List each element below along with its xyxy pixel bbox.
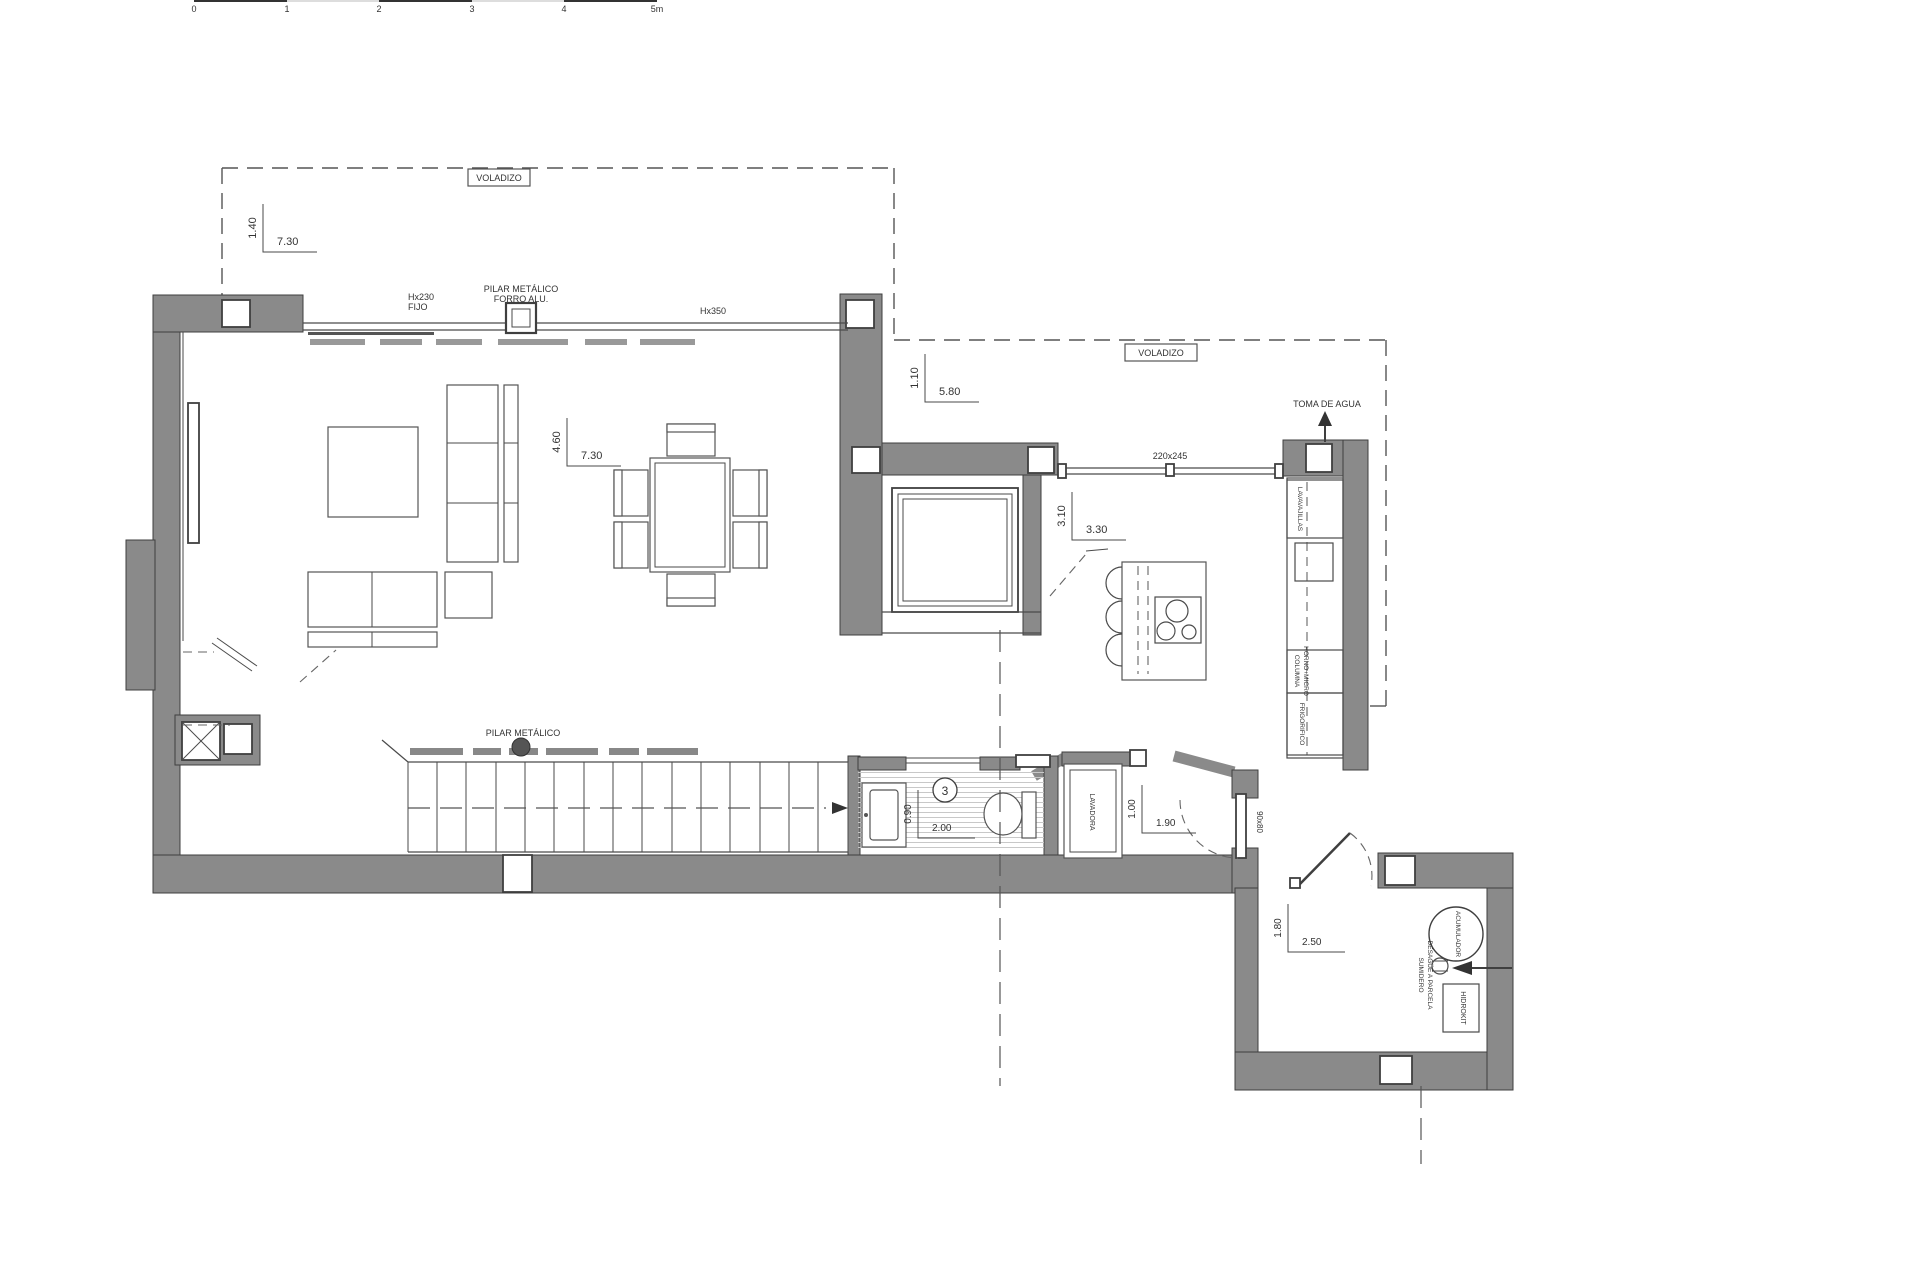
faucet-dot xyxy=(864,813,868,817)
bar-stool xyxy=(1106,601,1122,633)
kitchen-right-wall xyxy=(1343,440,1368,770)
dimension-value: 1.80 xyxy=(1273,918,1284,938)
column xyxy=(1028,447,1054,473)
kitchen-counter: LAVAVAJILLAS COLUMNA HORNO+MICRO FRIGORI… xyxy=(1287,478,1343,758)
dimension-value: 5.80 xyxy=(939,386,960,398)
lavadora-label: LAVADORA xyxy=(1088,793,1095,830)
scale-tick-1: 1 xyxy=(284,4,289,14)
dimension-4-60-7-30: 4.60 7.30 xyxy=(551,418,621,466)
columns xyxy=(182,300,1415,1084)
dimension-value: 7.30 xyxy=(581,450,602,462)
metal-pillar-dot xyxy=(512,738,530,756)
upper-floor-dash xyxy=(1050,554,1086,596)
dimension-1-10-5-80: 1.10 5.80 xyxy=(909,354,979,402)
dishwasher xyxy=(1287,480,1343,538)
scale-tick-2: 2 xyxy=(376,4,381,14)
dining-table xyxy=(650,458,730,572)
staircase: PILAR METÁLICO xyxy=(382,728,848,852)
dimension-value: 1.10 xyxy=(909,367,921,388)
drain-arrow-head xyxy=(1452,961,1472,975)
entry-door-leaf xyxy=(1236,794,1246,858)
stair-rail-seg xyxy=(546,748,598,755)
island-counter xyxy=(1122,562,1206,680)
dining-chair-back xyxy=(667,598,715,606)
wall-niche-window xyxy=(188,403,199,543)
toilet-cistern xyxy=(1022,792,1036,838)
scale-bar-segment xyxy=(472,0,564,2)
door-hinge xyxy=(1290,878,1300,888)
ottoman xyxy=(445,572,492,618)
sofa-seats-vertical xyxy=(447,385,498,562)
sumidero-label-1: SUMIDERO xyxy=(1417,957,1424,992)
dining-chair-back xyxy=(614,470,622,516)
dining-set xyxy=(614,424,767,606)
column xyxy=(846,300,874,328)
scale-tick-4: 4 xyxy=(561,4,566,14)
scale-tick-5: 5m xyxy=(651,4,664,14)
bottom-wall-window xyxy=(503,855,532,892)
scale-bar: 0 1 2 3 4 5m xyxy=(191,0,663,14)
shaft-right-wall xyxy=(1023,475,1041,635)
terrace-edge-seg xyxy=(585,339,627,345)
stair-rail-seg xyxy=(647,748,698,755)
dimension-value: 3.30 xyxy=(1086,524,1107,536)
metal-pillar xyxy=(506,303,536,333)
stair-rail-seg xyxy=(473,748,501,755)
column xyxy=(852,447,880,473)
stair-arrow xyxy=(832,802,848,814)
scale-bar-segment xyxy=(287,0,379,2)
utility-bottom-wall xyxy=(1235,1052,1513,1090)
column xyxy=(222,300,250,327)
hx350-label: Hx350 xyxy=(700,306,726,316)
door-size-label: 90x80 xyxy=(1255,811,1264,833)
counter-run xyxy=(1287,478,1343,758)
scale-tick-3: 3 xyxy=(469,4,474,14)
left-wall-step xyxy=(126,540,155,690)
dimension-1-40-7-30: 1.40 7.30 xyxy=(247,204,317,252)
entry-door-swing xyxy=(1180,800,1238,858)
dimension-value: 3.10 xyxy=(1056,505,1068,526)
dimension-value: 4.60 xyxy=(551,431,563,452)
dining-chair-back xyxy=(759,470,767,516)
utility-door-swing xyxy=(1350,833,1372,886)
fridge xyxy=(1287,693,1343,755)
bath-top-wall-a xyxy=(858,757,906,770)
terrace-edge-seg xyxy=(310,339,365,345)
window-post xyxy=(1058,464,1066,478)
floor-plan-canvas: 0 1 2 3 4 5m VOLADIZO VOLADIZO xyxy=(0,0,1920,1280)
skylight-outer xyxy=(892,488,1018,612)
oven-column-label-1: COLUMNA xyxy=(1293,655,1300,688)
sliding-rail xyxy=(308,332,434,335)
bath-sliding-door xyxy=(1016,755,1050,767)
bath-right-wall xyxy=(1044,756,1058,855)
corner-glazing-diagonal xyxy=(212,643,252,671)
terrace-edge-seg xyxy=(640,339,695,345)
dining-chair-back xyxy=(667,424,715,432)
central-shaft xyxy=(882,488,1041,633)
dimension-value: 1.90 xyxy=(1156,818,1176,829)
column xyxy=(1385,856,1415,885)
fridge-label: FRIGORIFICO xyxy=(1298,703,1305,746)
column xyxy=(1130,750,1146,766)
dimension-3-10-3-30: 3.10 3.30 xyxy=(1056,492,1126,540)
scale-tick-0: 0 xyxy=(191,4,196,14)
hx230-label: Hx230 xyxy=(408,292,434,302)
upper-floor-edge xyxy=(1086,549,1108,551)
utility-door-leaf xyxy=(1298,833,1350,886)
sumidero-label-2: DESAGÜE A PARCELA xyxy=(1426,941,1434,1011)
scale-bar-segment xyxy=(194,0,287,2)
dimension-value: 2.00 xyxy=(932,823,952,834)
dimension-value: 7.30 xyxy=(277,236,298,248)
floor-plan-drawing: 0 1 2 3 4 5m VOLADIZO VOLADIZO xyxy=(0,0,1920,1280)
stair-rail-seg xyxy=(410,748,463,755)
water-arrow-head xyxy=(1318,411,1332,426)
hidrokit-label: HIDROKIT xyxy=(1459,991,1466,1025)
voladizo-label-1: VOLADIZO xyxy=(476,173,522,183)
toma-de-agua-label: TOMA DE AGUA xyxy=(1293,399,1361,409)
stair-rail-seg xyxy=(609,748,639,755)
sofa-backrest-vertical xyxy=(504,385,518,562)
oven-column-label-2: HORNO+MICRO xyxy=(1302,646,1309,696)
dimension-1-80-2-50: 1.80 2.50 xyxy=(1273,904,1345,952)
left-wall xyxy=(153,295,180,855)
voladizo-outline-upper: VOLADIZO xyxy=(222,168,894,340)
voladizo-label-2: VOLADIZO xyxy=(1138,348,1184,358)
acumulador-label: ACUMULADOR xyxy=(1454,911,1461,958)
terrace-edge-seg xyxy=(436,339,482,345)
window-mullion xyxy=(1166,464,1174,476)
column xyxy=(224,724,252,754)
kitchen-island xyxy=(1050,549,1206,680)
bottom-wall xyxy=(153,855,1258,893)
pilar-metalico-label-1: PILAR METÁLICO xyxy=(484,284,559,294)
dining-chair-back xyxy=(759,522,767,568)
fijo-label: FIJO xyxy=(408,302,428,312)
corner-glazing-diagonal xyxy=(217,638,257,666)
window-size-label: 220x245 xyxy=(1153,451,1188,461)
dimension-1-00-1-90: 1.00 1.90 xyxy=(1127,785,1196,833)
utility-window xyxy=(1380,1056,1412,1084)
dishwasher-label: LAVAVAJILLAS xyxy=(1296,487,1303,532)
dimension-value: 0.90 xyxy=(903,804,914,824)
column xyxy=(1306,444,1332,472)
dimension-value: 1.40 xyxy=(247,217,259,238)
stair-lead-line xyxy=(382,740,408,762)
bar-stool xyxy=(1106,567,1122,599)
utility-right-wall xyxy=(1487,853,1513,1090)
living-room-sofa xyxy=(308,385,518,647)
scale-bar-segment xyxy=(379,0,472,2)
bar-stool xyxy=(1106,634,1122,666)
toilet-bowl xyxy=(984,793,1022,835)
upper-floor-dash xyxy=(300,650,336,682)
dining-chair-back xyxy=(614,522,622,568)
dimension-value: 1.00 xyxy=(1127,799,1138,819)
window-post xyxy=(1275,464,1283,478)
kitchen-sink xyxy=(1295,543,1333,581)
dimension-value: 2.50 xyxy=(1302,937,1322,948)
drain xyxy=(1432,958,1448,974)
pilar-metalico-label-2: PILAR METÁLICO xyxy=(486,728,561,738)
room-number: 3 xyxy=(942,784,949,798)
hall-top-wall-slant xyxy=(1174,756,1234,772)
bathroom-sink-basin xyxy=(870,790,898,840)
terrace-edge-seg xyxy=(380,339,422,345)
terrace-edge-seg xyxy=(498,339,568,345)
coffee-table xyxy=(328,427,418,517)
scale-bar-segment xyxy=(564,0,657,2)
forro-alu-label: FORRO ALU. xyxy=(494,294,549,304)
